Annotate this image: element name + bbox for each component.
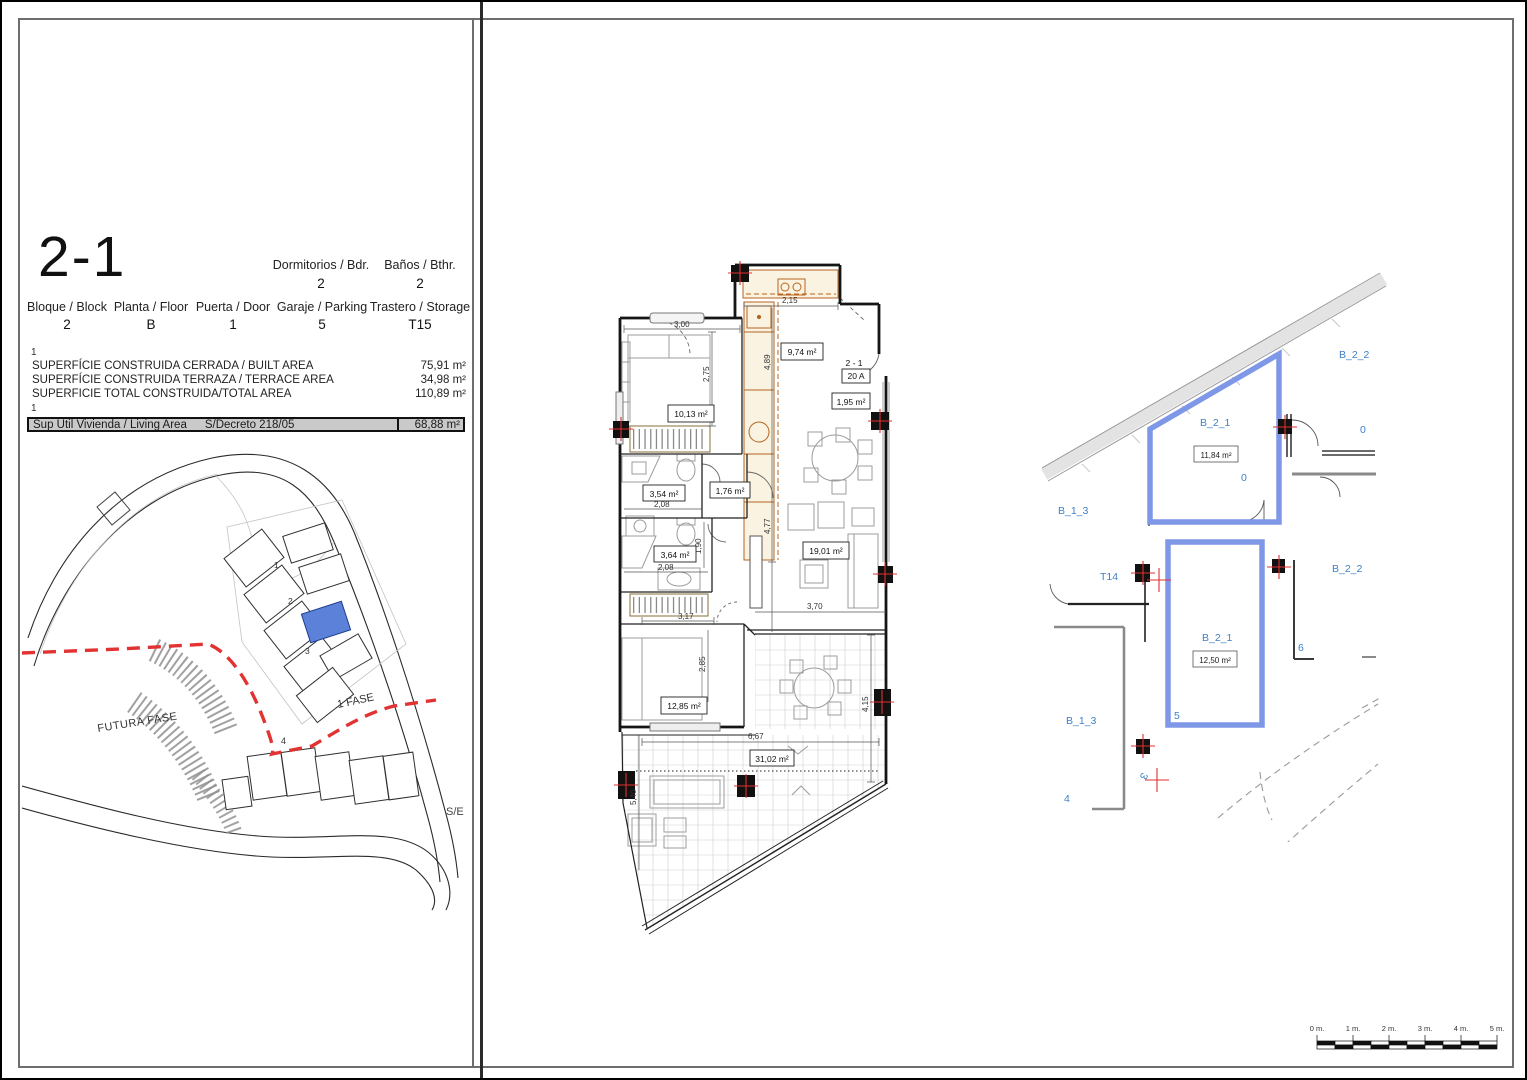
site-roads	[22, 454, 458, 910]
living-area-label: Sup Util Vivienda / Living Area	[29, 419, 187, 431]
block-2-label: 2	[288, 596, 293, 606]
value-banos: 2	[416, 276, 424, 291]
survey-cross-icon	[1131, 415, 1297, 792]
unit-ref: 2 - 1	[845, 358, 862, 368]
n5-label: 5	[1174, 710, 1180, 722]
terrace-area: 31,02 m²	[755, 754, 789, 764]
b13-lower-label: B_1_3	[1066, 715, 1097, 727]
svg-text:2 m.: 2 m.	[1382, 1024, 1397, 1033]
n4-label: 4	[1064, 793, 1070, 805]
svg-text:5 m.: 5 m.	[1490, 1024, 1505, 1033]
scale-bar: 0 m. 1 m. 2 m. 3 m. 4 m. 5 m.	[1307, 1017, 1507, 1062]
svg-text:4,15: 4,15	[861, 696, 870, 712]
living-area: 19,01 m²	[809, 546, 843, 556]
storage-highlight	[1150, 354, 1279, 725]
area-row-total: SUPERFICIE TOTAL CONSTRUIDA/TOTAL AREA 1…	[32, 388, 466, 400]
living-area-bar: Sup Util Vivienda / Living Area S/Decret…	[27, 417, 465, 432]
svg-text:3,00: 3,00	[674, 320, 690, 329]
footnote-1: 1	[31, 347, 37, 358]
label-garaje: Garaje / Parking	[277, 300, 367, 314]
svg-text:0 m.: 0 m.	[1310, 1024, 1325, 1033]
label-planta: Planta / Floor	[114, 300, 188, 314]
scale-bar-segments	[1317, 1035, 1497, 1049]
svg-text:3,17: 3,17	[678, 612, 694, 621]
value-puerta: 1	[229, 317, 237, 332]
svg-text:2,15: 2,15	[782, 296, 798, 305]
bath2-area: 3,64 m²	[661, 550, 690, 560]
living-area-decree: S/Decreto 218/05	[187, 419, 295, 431]
label-dormitorios: Dormitorios / Bdr.	[273, 258, 370, 272]
door-ref: 20 A	[847, 371, 864, 381]
label-banos: Baños / Bthr.	[384, 258, 456, 272]
b13-left-label: B_1_3	[1058, 505, 1089, 517]
svg-text:3,70: 3,70	[807, 602, 823, 611]
area-label: SUPERFICIE TOTAL CONSTRUIDA/TOTAL AREA	[32, 388, 291, 400]
bath1-area: 3,54 m²	[650, 489, 679, 499]
parking-name: B_2_1	[1202, 632, 1233, 644]
garage-plan: B_2_2 B_2_1 11,84 m² 0 0 B_1_3 T14 B_2_1…	[1042, 272, 1387, 842]
svg-text:1 m.: 1 m.	[1346, 1024, 1361, 1033]
scale-bar-ticks: 0 m. 1 m. 2 m. 3 m. 4 m. 5 m.	[1310, 1024, 1505, 1033]
t14-label: T14	[1100, 571, 1118, 583]
garage-labels: B_2_2 B_2_1 11,84 m² 0 0 B_1_3 T14 B_2_1…	[1058, 349, 1370, 805]
area-label: SUPERFÍCIE CONSTRUIDA CERRADA / BUILT AR…	[32, 360, 313, 372]
svg-text:2,75: 2,75	[702, 366, 711, 382]
sheet-divider	[480, 2, 483, 1080]
plan-sheet: 2-1 Dormitorios / Bdr. 2 Baños / Bthr. 2…	[0, 0, 1527, 1080]
value-planta: B	[146, 317, 155, 332]
area-row-built: SUPERFÍCIE CONSTRUIDA CERRADA / BUILT AR…	[32, 360, 466, 372]
unit-code: 2-1	[38, 224, 126, 290]
floor-plan: 3,00 2,75 2,15 4,89 4,77 3,70 2,08 2,08 …	[602, 252, 952, 952]
area-value: 34,98 m²	[421, 374, 466, 386]
n6-label: 6	[1298, 642, 1304, 654]
block-4-label: 4	[281, 736, 286, 746]
parking-rows	[134, 650, 234, 832]
svg-text:2,08: 2,08	[658, 563, 674, 572]
value-garaje: 5	[318, 317, 326, 332]
value-trastero: T15	[408, 317, 431, 332]
n3-label: 3	[1137, 771, 1150, 782]
zero-b-label: 0	[1360, 424, 1366, 436]
label-puerta: Puerta / Door	[196, 300, 270, 314]
highlighted-unit	[301, 601, 350, 643]
scale-note: S/E	[446, 806, 464, 818]
svg-text:4 m.: 4 m.	[1454, 1024, 1469, 1033]
garage-walls	[1050, 414, 1376, 809]
block-1-label: 1	[274, 560, 279, 570]
svg-text:4,89: 4,89	[763, 354, 772, 370]
b22-top-label: B_2_2	[1339, 349, 1370, 361]
svg-text:2,85: 2,85	[698, 656, 707, 672]
site-structure	[97, 492, 130, 525]
hall-area: 1,76 m²	[716, 486, 745, 496]
svg-text:5,40: 5,40	[629, 789, 638, 805]
living-area-value: 68,88 m²	[397, 419, 463, 430]
storage-name: B_2_1	[1200, 417, 1231, 429]
road-dashed-edges	[1218, 698, 1380, 842]
b22-mid-label: B_2_2	[1332, 563, 1363, 575]
site-plan: FUTURA FASE 1 FASE 1 2 3 4 S/E	[22, 442, 472, 912]
kitchen-counters	[743, 270, 838, 560]
value-dormitorios: 2	[317, 276, 325, 291]
area-value: 110,89 m²	[415, 388, 466, 400]
area-label: SUPERFÍCIE CONSTRUIDA TERRAZA / TERRACE …	[32, 374, 334, 386]
area-value: 75,91 m²	[421, 360, 466, 372]
area-row-terrace: SUPERFÍCIE CONSTRUIDA TERRAZA / TERRACE …	[32, 374, 466, 386]
entry-area: 1,95 m²	[837, 397, 866, 407]
label-bloque: Bloque / Block	[27, 300, 107, 314]
svg-text:3 m.: 3 m.	[1418, 1024, 1433, 1033]
parking-area: 12,50 m²	[1199, 656, 1231, 665]
svg-text:6,67: 6,67	[748, 732, 764, 741]
zero-a-label: 0	[1241, 472, 1247, 484]
footnote-2: 1	[31, 403, 37, 414]
kitchen-area: 9,74 m²	[788, 347, 817, 357]
value-bloque: 2	[63, 317, 71, 332]
block-3-label: 3	[305, 646, 310, 656]
bedroom1-area: 10,13 m²	[674, 409, 708, 419]
site-secondary-lines	[40, 474, 406, 724]
bedroom2-area: 12,85 m²	[667, 701, 701, 711]
site-buildings	[222, 523, 419, 810]
svg-text:4,77: 4,77	[763, 518, 772, 534]
panel-divider	[472, 18, 474, 1066]
label-trastero: Trastero / Storage	[370, 300, 470, 314]
storage-area: 11,84 m²	[1201, 451, 1232, 460]
